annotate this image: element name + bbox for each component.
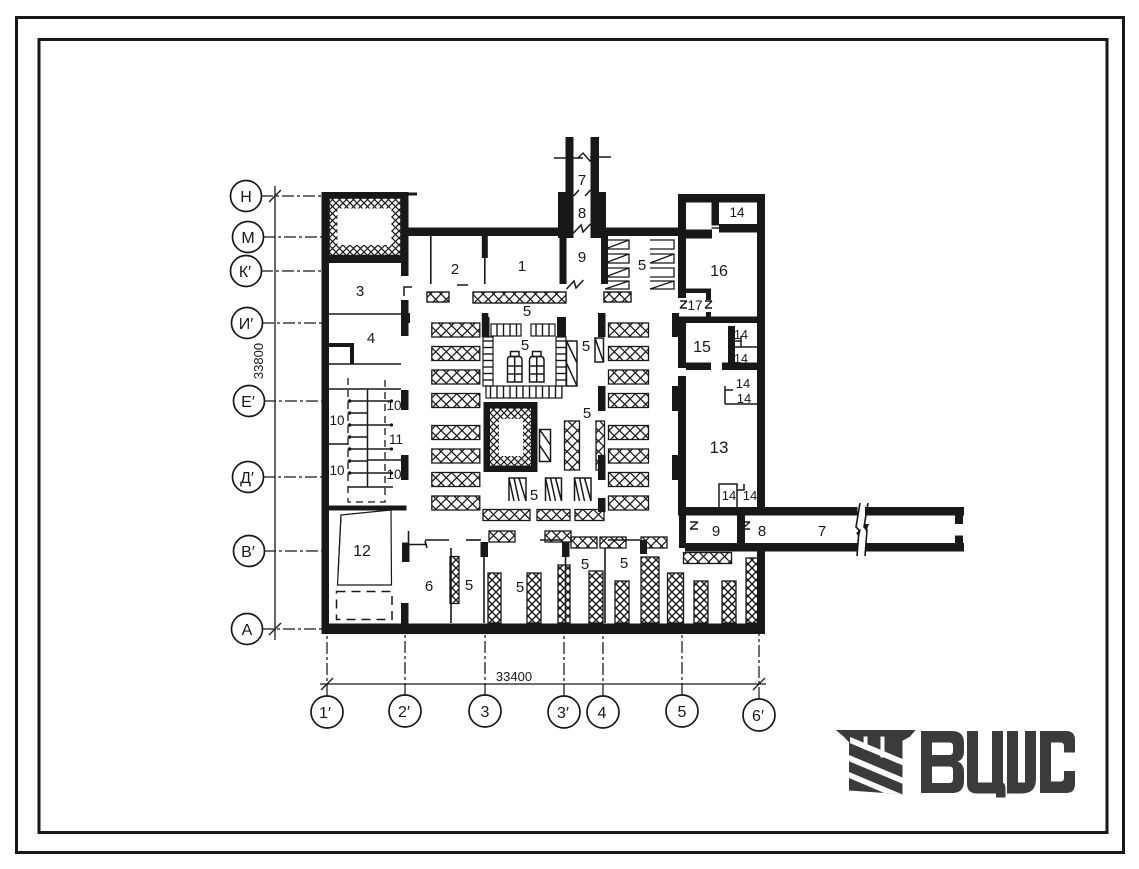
svg-text:5: 5 — [521, 337, 529, 354]
svg-text:12: 12 — [353, 543, 371, 560]
svg-text:7: 7 — [578, 172, 586, 189]
svg-text:7: 7 — [818, 523, 826, 540]
svg-text:1: 1 — [518, 258, 526, 275]
svg-text:10: 10 — [386, 467, 401, 482]
svg-text:8: 8 — [578, 205, 586, 222]
svg-text:33800: 33800 — [251, 343, 266, 379]
svg-text:9: 9 — [578, 249, 586, 266]
svg-text:15: 15 — [693, 339, 711, 356]
svg-text:М: М — [241, 230, 254, 247]
svg-text:14: 14 — [743, 488, 757, 503]
svg-text:10: 10 — [329, 413, 344, 428]
svg-text:Д′: Д′ — [240, 470, 254, 487]
svg-text:4: 4 — [367, 330, 375, 347]
svg-text:К′: К′ — [239, 264, 251, 281]
svg-text:14: 14 — [736, 376, 750, 391]
svg-text:14: 14 — [722, 488, 736, 503]
svg-text:11: 11 — [389, 432, 403, 447]
svg-text:5: 5 — [583, 405, 591, 422]
svg-text:14: 14 — [737, 391, 751, 406]
svg-text:5: 5 — [678, 704, 687, 721]
svg-text:14: 14 — [734, 328, 748, 342]
svg-text:10: 10 — [329, 463, 344, 478]
svg-text:4: 4 — [598, 705, 607, 722]
svg-text:6′: 6′ — [752, 708, 764, 725]
svg-text:5: 5 — [582, 338, 590, 355]
svg-text:16: 16 — [710, 263, 728, 280]
svg-text:5: 5 — [523, 303, 531, 320]
svg-text:Н: Н — [240, 189, 252, 206]
svg-text:Е′: Е′ — [241, 394, 255, 411]
svg-text:6: 6 — [425, 578, 433, 595]
svg-text:33400: 33400 — [496, 669, 532, 684]
svg-text:3: 3 — [356, 283, 364, 300]
svg-text:5: 5 — [620, 555, 628, 572]
svg-text:1′: 1′ — [319, 705, 331, 722]
svg-text:9: 9 — [712, 523, 720, 540]
svg-text:13: 13 — [710, 438, 729, 457]
svg-text:10: 10 — [386, 398, 401, 413]
svg-text:2′: 2′ — [398, 704, 410, 721]
svg-text:5: 5 — [581, 556, 589, 573]
svg-text:5: 5 — [465, 577, 473, 594]
svg-text:14: 14 — [729, 205, 745, 220]
svg-text:2: 2 — [451, 261, 459, 278]
svg-text:5: 5 — [638, 257, 646, 274]
svg-text:3: 3 — [481, 704, 490, 721]
svg-text:3′: 3′ — [557, 705, 569, 722]
svg-text:А: А — [242, 622, 253, 639]
svg-text:5: 5 — [516, 579, 524, 596]
svg-text:8: 8 — [758, 523, 766, 540]
svg-text:И′: И′ — [239, 316, 254, 333]
svg-text:5: 5 — [530, 487, 538, 504]
svg-text:17: 17 — [687, 298, 702, 313]
svg-text:В′: В′ — [241, 544, 255, 561]
